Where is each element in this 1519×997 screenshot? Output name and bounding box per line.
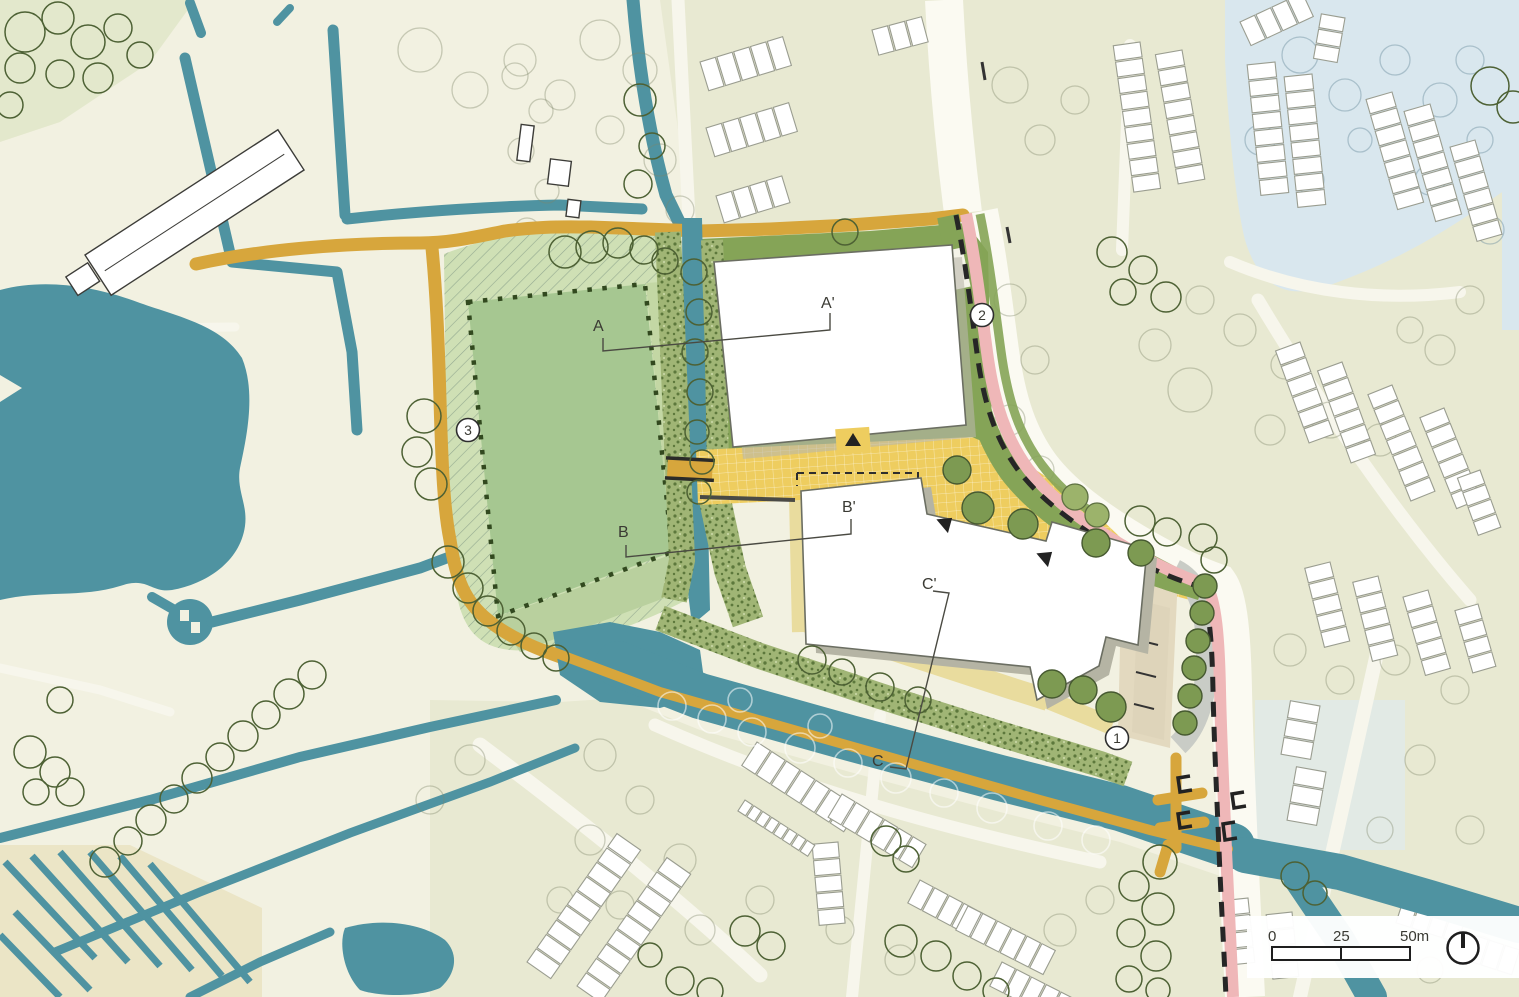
section-label-b-prime: B' <box>842 499 856 516</box>
house <box>1251 95 1280 113</box>
marker-3: 3 <box>457 419 480 442</box>
tree-icon <box>1193 574 1217 598</box>
house <box>1113 42 1142 61</box>
house <box>1252 112 1281 130</box>
marker-2-label: 2 <box>978 307 986 323</box>
house <box>1258 161 1287 179</box>
tree-icon <box>1085 503 1109 527</box>
house <box>1129 157 1158 176</box>
marker-2: 2 <box>971 304 994 327</box>
house <box>818 908 845 925</box>
lake <box>0 284 249 600</box>
house <box>1123 108 1152 127</box>
scale-tick-25: 25 <box>1333 928 1350 945</box>
tree-icon <box>1062 484 1088 510</box>
tree-icon <box>962 492 994 524</box>
building-a-entrance <box>835 427 871 454</box>
tree-icon <box>1069 676 1097 704</box>
house <box>1120 91 1149 110</box>
section-label-b: B <box>618 524 629 541</box>
marker-1: 1 <box>1106 727 1129 750</box>
house <box>1296 190 1325 208</box>
masterplan-page: A A' B B' C C' 1 2 3 0 25 50m <box>0 0 1519 997</box>
house <box>1249 79 1278 97</box>
tree-icon <box>1128 540 1154 566</box>
building-a <box>714 245 976 459</box>
tree-icon <box>1038 670 1066 698</box>
scale-bar: 0 25 50m <box>1247 916 1519 978</box>
house <box>1291 140 1320 158</box>
tree-icon <box>1186 629 1210 653</box>
house <box>1284 74 1313 92</box>
tree-icon <box>1190 601 1214 625</box>
house <box>1288 107 1317 125</box>
house <box>1127 141 1156 160</box>
house <box>1259 178 1288 196</box>
tree-icon <box>1182 656 1206 680</box>
house <box>1256 145 1285 163</box>
house <box>1254 128 1283 146</box>
pond <box>167 599 213 645</box>
tree-icon <box>1008 509 1038 539</box>
house <box>1125 124 1154 143</box>
marker-1-label: 1 <box>1113 730 1121 746</box>
north-arrow-icon <box>1448 933 1479 964</box>
house <box>816 892 843 909</box>
tree-icon <box>1173 711 1197 735</box>
house <box>812 842 839 859</box>
masterplan-map: A A' B B' C C' 1 2 3 0 25 50m <box>0 0 1519 997</box>
park-field <box>444 228 690 652</box>
house <box>1289 124 1318 142</box>
section-label-c: C <box>872 753 884 770</box>
section-label-c-prime: C' <box>922 576 937 593</box>
house <box>1293 157 1322 175</box>
tree-icon <box>1082 529 1110 557</box>
house <box>1247 62 1276 80</box>
section-label-a: A <box>593 318 604 335</box>
tree-icon <box>1096 692 1126 722</box>
scale-tick-0: 0 <box>1268 928 1276 945</box>
tree-icon <box>1178 684 1202 708</box>
marker-3-label: 3 <box>464 422 472 438</box>
house <box>1116 58 1145 77</box>
section-label-a-prime: A' <box>821 295 835 312</box>
scale-tick-50: 50m <box>1400 928 1429 945</box>
house <box>1118 75 1147 94</box>
house <box>814 859 841 876</box>
house <box>1286 91 1315 109</box>
house <box>1295 173 1324 191</box>
house <box>1132 174 1161 193</box>
house <box>815 875 842 892</box>
tree-icon <box>943 456 971 484</box>
